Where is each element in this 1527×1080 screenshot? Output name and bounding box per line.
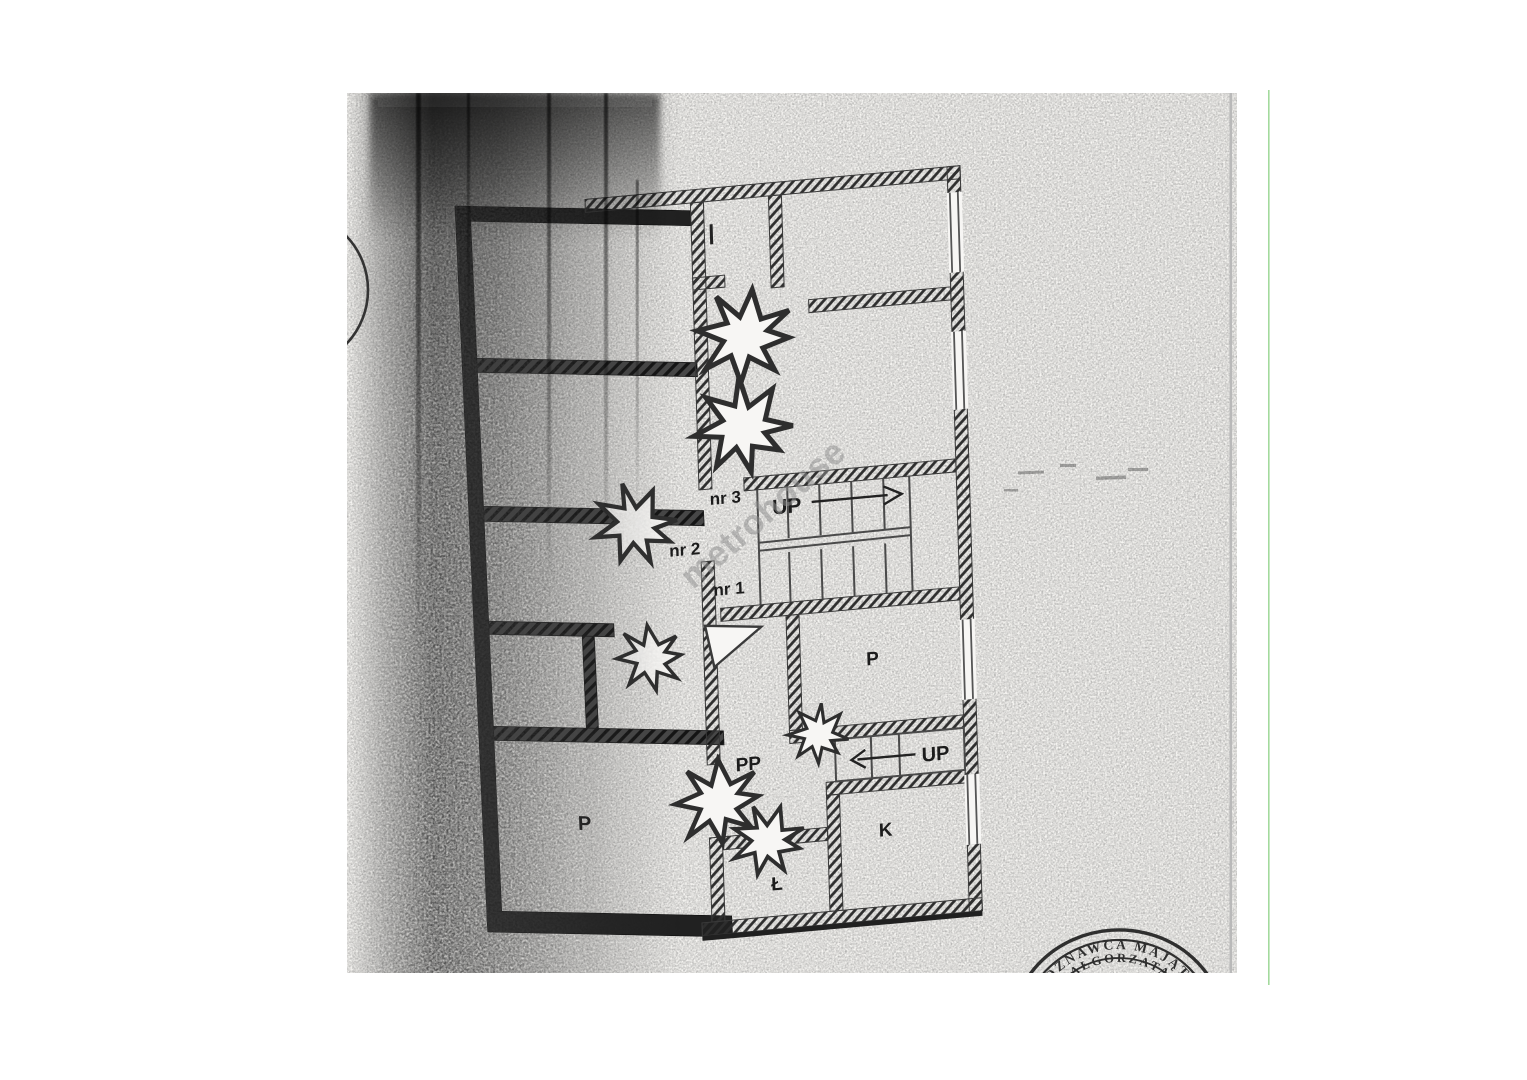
scanned-floor-plan-screenshot: P bbox=[0, 0, 1527, 1080]
floor-plan-scan-image: P bbox=[0, 0, 1527, 1080]
wall bbox=[693, 275, 725, 290]
room-label-l: Ł bbox=[771, 874, 784, 896]
room-label-p-middle: P bbox=[866, 648, 880, 670]
room-label-k: K bbox=[879, 820, 894, 842]
tick-mark bbox=[711, 224, 712, 244]
page-edge-shadow-line bbox=[1230, 93, 1233, 973]
scanner-toner-streaks bbox=[350, 93, 680, 973]
scanner-green-line-artifact bbox=[1268, 90, 1270, 985]
wall bbox=[768, 195, 784, 288]
partial-stamp-arc bbox=[212, 212, 368, 368]
door-label-nr3: nr 3 bbox=[709, 487, 741, 509]
door-label-nr1: nr 1 bbox=[713, 578, 745, 600]
room-label-pp: PP bbox=[735, 753, 761, 776]
stairs-up-label-bottom: UP bbox=[921, 742, 949, 766]
wall bbox=[826, 794, 842, 911]
